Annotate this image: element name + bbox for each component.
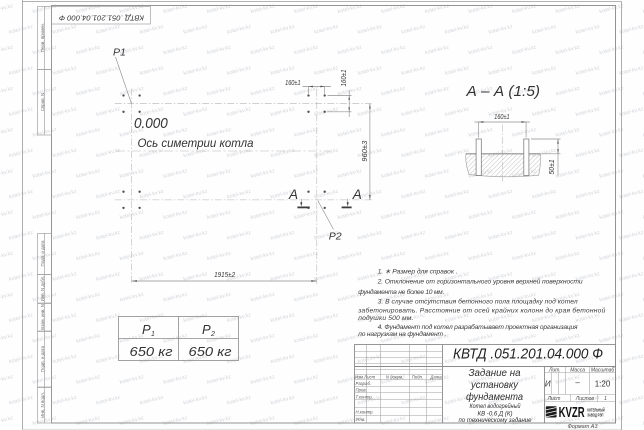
svg-text:Листов: Листов [575, 396, 595, 402]
svg-text:kotel-kv.kz: kotel-kv.kz [488, 230, 514, 242]
svg-text:kotel-kv.kz: kotel-kv.kz [8, 312, 34, 324]
svg-text:kotel-kv.kz: kotel-kv.kz [119, 292, 145, 304]
svg-text:kotel-kv.kz: kotel-kv.kz [599, 333, 625, 345]
svg-text:1: 1 [604, 396, 607, 402]
svg-text:kotel-kv.kz: kotel-kv.kz [32, 127, 58, 139]
svg-text:kotel-kv.kz: kotel-kv.kz [183, 106, 209, 118]
svg-text:kotel-kv.kz: kotel-kv.kz [424, 209, 450, 221]
svg-text:kotel-kv.kz: kotel-kv.kz [381, 415, 407, 427]
svg-text:kotel-kv.kz: kotel-kv.kz [226, 65, 252, 77]
svg-text:kotel-kv.kz: kotel-kv.kz [206, 168, 232, 180]
svg-text:kotel-kv.kz: kotel-kv.kz [619, 353, 644, 365]
svg-text:kotel-kv.kz: kotel-kv.kz [8, 353, 34, 365]
svg-text:kotel-kv.kz: kotel-kv.kz [52, 24, 78, 36]
svg-text:kotel-kv.kz: kotel-kv.kz [0, 333, 14, 345]
svg-text:kotel-kv.kz: kotel-kv.kz [532, 230, 558, 242]
svg-text:kotel-kv.kz: kotel-kv.kz [76, 209, 102, 221]
svg-text:Лит.: Лит. [548, 367, 561, 373]
svg-text:kotel-kv.kz: kotel-kv.kz [424, 44, 450, 56]
svg-text:kotel-kv.kz: kotel-kv.kz [401, 189, 427, 201]
svg-text:kotel-kv.kz: kotel-kv.kz [0, 250, 14, 262]
svg-text:kotel-kv.kz: kotel-kv.kz [32, 209, 58, 221]
svg-text:kotel-kv.kz: kotel-kv.kz [401, 147, 427, 159]
svg-text:kotel-kv.kz: kotel-kv.kz [76, 86, 102, 98]
svg-text:kotel-kv.kz: kotel-kv.kz [250, 415, 276, 427]
svg-text:Утв.: Утв. [356, 417, 366, 422]
svg-text:kotel-kv.kz: kotel-kv.kz [575, 189, 601, 201]
svg-text:kotel-kv.kz: kotel-kv.kz [555, 168, 581, 180]
svg-text:КОТЕЛЬНЫЙ: КОТЕЛЬНЫЙ [587, 407, 605, 412]
svg-text:kotel-kv.kz: kotel-kv.kz [32, 3, 58, 15]
svg-text:kotel-kv.kz: kotel-kv.kz [0, 127, 14, 139]
svg-text:А – А (1:5): А – А (1:5) [465, 83, 540, 100]
svg-text:kotel-kv.kz: kotel-kv.kz [381, 3, 407, 15]
svg-text:kotel-kv.kz: kotel-kv.kz [139, 65, 165, 77]
svg-text:kotel-kv.kz: kotel-kv.kz [337, 44, 363, 56]
svg-text:kotel-kv.kz: kotel-kv.kz [0, 168, 14, 180]
svg-text:kotel-kv.kz: kotel-kv.kz [270, 353, 296, 365]
svg-text:kotel-kv.kz: kotel-kv.kz [76, 127, 102, 139]
svg-text:kotel-kv.kz: kotel-kv.kz [96, 353, 122, 365]
svg-text:kotel-kv.kz: kotel-kv.kz [76, 292, 102, 304]
svg-text:Инв. N дубл.: Инв. N дубл. [40, 276, 45, 302]
svg-text:Лист: Лист [547, 396, 561, 402]
svg-text:kotel-kv.kz: kotel-kv.kz [337, 3, 363, 15]
svg-text:kotel-kv.kz: kotel-kv.kz [444, 24, 470, 36]
svg-text:kotel-kv.kz: kotel-kv.kz [619, 24, 644, 36]
svg-text:kotel-kv.kz: kotel-kv.kz [250, 44, 276, 56]
svg-text:kotel-kv.kz: kotel-kv.kz [381, 168, 407, 180]
svg-text:kotel-kv.kz: kotel-kv.kz [250, 333, 276, 345]
svg-text:kotel-kv.kz: kotel-kv.kz [424, 168, 450, 180]
svg-text:kotel-kv.kz: kotel-kv.kz [183, 230, 209, 242]
svg-text:kotel-kv.kz: kotel-kv.kz [163, 374, 189, 386]
svg-text:kotel-kv.kz: kotel-kv.kz [401, 106, 427, 118]
svg-text:kotel-kv.kz: kotel-kv.kz [250, 209, 276, 221]
svg-text:kotel-kv.kz: kotel-kv.kz [8, 147, 34, 159]
svg-text:kotel-kv.kz: kotel-kv.kz [599, 3, 625, 15]
svg-text:Справ. N: Справ. N [40, 93, 45, 111]
svg-text:kotel-kv.kz: kotel-kv.kz [96, 106, 122, 118]
svg-text:kotel-kv.kz: kotel-kv.kz [294, 209, 320, 221]
svg-text:ЗАВОД РЭП: ЗАВОД РЭП [587, 413, 603, 418]
svg-text:kotel-kv.kz: kotel-kv.kz [512, 209, 538, 221]
svg-text:kotel-kv.kz: kotel-kv.kz [314, 312, 340, 324]
svg-text:Разраб.: Разраб. [356, 381, 372, 386]
svg-text:фундамента не более 10 мм.: фундамента не более 10 мм. [358, 288, 444, 296]
svg-text:P1: P1 [113, 46, 126, 58]
svg-text:160±1: 160±1 [285, 78, 301, 87]
svg-text:kotel-kv.kz: kotel-kv.kz [52, 65, 78, 77]
svg-text:kotel-kv.kz: kotel-kv.kz [270, 230, 296, 242]
svg-text:kotel-kv.kz: kotel-kv.kz [52, 106, 78, 118]
svg-text:kotel-kv.kz: kotel-kv.kz [294, 415, 320, 427]
svg-text:kotel-kv.kz: kotel-kv.kz [599, 209, 625, 221]
svg-text:kotel-kv.kz: kotel-kv.kz [424, 3, 450, 15]
svg-text:kotel-kv.kz: kotel-kv.kz [314, 353, 340, 365]
svg-text:kotel-kv.kz: kotel-kv.kz [163, 168, 189, 180]
svg-text:650 кг: 650 кг [189, 344, 233, 359]
svg-text:50±1: 50±1 [547, 159, 556, 174]
svg-text:–: – [575, 378, 580, 387]
svg-text:kotel-kv.kz: kotel-kv.kz [8, 271, 34, 283]
svg-text:kotel-kv.kz: kotel-kv.kz [575, 65, 601, 77]
svg-text:kotel-kv.kz: kotel-kv.kz [512, 250, 538, 262]
svg-text:kotel-kv.kz: kotel-kv.kz [444, 65, 470, 77]
svg-text:kotel-kv.kz: kotel-kv.kz [119, 168, 145, 180]
svg-text:Н.контр.: Н.контр. [356, 410, 374, 415]
svg-text:kotel-kv.kz: kotel-kv.kz [119, 209, 145, 221]
svg-text:kotel-kv.kz: kotel-kv.kz [206, 209, 232, 221]
svg-text:kotel-kv.kz: kotel-kv.kz [163, 3, 189, 15]
svg-text:Изм.Лист: Изм.Лист [355, 375, 376, 380]
svg-text:kotel-kv.kz: kotel-kv.kz [139, 24, 165, 36]
svg-text:kotel-kv.kz: kotel-kv.kz [76, 44, 102, 56]
svg-text:kotel-kv.kz: kotel-kv.kz [270, 24, 296, 36]
svg-text:kotel-kv.kz: kotel-kv.kz [183, 65, 209, 77]
svg-text:kotel-kv.kz: kotel-kv.kz [52, 312, 78, 324]
svg-text:Взам. инв. N: Взам. инв. N [40, 304, 45, 330]
svg-text:kotel-kv.kz: kotel-kv.kz [0, 292, 14, 304]
svg-text:kotel-kv.kz: kotel-kv.kz [381, 209, 407, 221]
svg-text:kotel-kv.kz: kotel-kv.kz [163, 44, 189, 56]
svg-text:kotel-kv.kz: kotel-kv.kz [250, 292, 276, 304]
svg-text:установку: установку [470, 379, 519, 391]
svg-text:Перв. примен.: Перв. примен. [40, 23, 45, 52]
svg-text:kotel-kv.kz: kotel-kv.kz [8, 395, 34, 407]
svg-text:kotel-kv.kz: kotel-kv.kz [250, 250, 276, 262]
svg-text:kotel-kv.kz: kotel-kv.kz [206, 415, 232, 427]
svg-text:kotel-kv.kz: kotel-kv.kz [119, 374, 145, 386]
svg-text:kotel-kv.kz: kotel-kv.kz [163, 86, 189, 98]
svg-text:kotel-kv.kz: kotel-kv.kz [0, 86, 14, 98]
svg-text:kotel-kv.kz: kotel-kv.kz [226, 395, 252, 407]
svg-text:kotel-kv.kz: kotel-kv.kz [619, 65, 644, 77]
svg-text:по нагрузкам на фундамент .: по нагрузкам на фундамент . [358, 330, 446, 338]
svg-text:kotel-kv.kz: kotel-kv.kz [8, 189, 34, 201]
svg-text:2. Отклонение от горизонтально: 2. Отклонение от горизонтального уровня … [377, 278, 583, 286]
svg-text:kotel-kv.kz: kotel-kv.kz [183, 395, 209, 407]
svg-text:kotel-kv.kz: kotel-kv.kz [206, 250, 232, 262]
svg-text:kotel-kv.kz: kotel-kv.kz [226, 230, 252, 242]
svg-text:2: 2 [210, 331, 215, 338]
svg-text:kotel-kv.kz: kotel-kv.kz [575, 230, 601, 242]
svg-text:kotel-kv.kz: kotel-kv.kz [424, 86, 450, 98]
svg-text:kotel-kv.kz: kotel-kv.kz [139, 395, 165, 407]
svg-text:kotel-kv.kz: kotel-kv.kz [424, 250, 450, 262]
svg-text:kotel-kv.kz: kotel-kv.kz [8, 24, 34, 36]
svg-text:Масса: Масса [570, 367, 585, 373]
svg-text:kotel-kv.kz: kotel-kv.kz [96, 65, 122, 77]
svg-text:kotel-kv.kz: kotel-kv.kz [8, 65, 34, 77]
svg-text:kotel-kv.kz: kotel-kv.kz [163, 209, 189, 221]
svg-text:kotel-kv.kz: kotel-kv.kz [532, 106, 558, 118]
svg-text:kotel-kv.kz: kotel-kv.kz [270, 106, 296, 118]
svg-text:kotel-kv.kz: kotel-kv.kz [52, 353, 78, 365]
svg-text:3. В случае отсутствия бетонно: 3. В случае отсутствия бетонного пола пл… [378, 297, 578, 305]
svg-text:kotel-kv.kz: kotel-kv.kz [96, 312, 122, 324]
svg-text:подушки 500 мм.: подушки 500 мм. [358, 314, 413, 322]
svg-text:kotel-kv.kz: kotel-kv.kz [96, 147, 122, 159]
svg-text:kotel-kv.kz: kotel-kv.kz [599, 292, 625, 304]
svg-text:kotel-kv.kz: kotel-kv.kz [250, 86, 276, 98]
svg-text:kotel-kv.kz: kotel-kv.kz [294, 292, 320, 304]
svg-text:kotel-kv.kz: kotel-kv.kz [0, 3, 14, 15]
svg-text:kotel-kv.kz: kotel-kv.kz [468, 250, 494, 262]
svg-text:kotel-kv.kz: kotel-kv.kz [424, 127, 450, 139]
svg-text:650 кг: 650 кг [130, 344, 174, 359]
svg-text:kotel-kv.kz: kotel-kv.kz [401, 65, 427, 77]
svg-text:kotel-kv.kz: kotel-kv.kz [226, 24, 252, 36]
svg-text:kotel-kv.kz: kotel-kv.kz [32, 333, 58, 345]
svg-text:kotel-kv.kz: kotel-kv.kz [139, 230, 165, 242]
svg-text:kotel-kv.kz: kotel-kv.kz [270, 147, 296, 159]
svg-text:kotel-kv.kz: kotel-kv.kz [314, 147, 340, 159]
svg-text:kotel-kv.kz: kotel-kv.kz [52, 395, 78, 407]
svg-text:kotel-kv.kz: kotel-kv.kz [357, 230, 383, 242]
svg-text:kotel-kv.kz: kotel-kv.kz [96, 189, 122, 201]
svg-text:kotel-kv.kz: kotel-kv.kz [0, 44, 14, 56]
svg-text:kotel-kv.kz: kotel-kv.kz [294, 250, 320, 262]
svg-text:kotel-kv.kz: kotel-kv.kz [381, 44, 407, 56]
svg-text:kotel-kv.kz: kotel-kv.kz [599, 250, 625, 262]
svg-text:kotel-kv.kz: kotel-kv.kz [401, 395, 427, 407]
svg-text:по техническому задание: по техническому задание [459, 418, 533, 424]
svg-text:kotel-kv.kz: kotel-kv.kz [270, 65, 296, 77]
svg-text:P: P [142, 322, 151, 337]
svg-text:kotel-kv.kz: kotel-kv.kz [163, 292, 189, 304]
svg-text:kotel-kv.kz: kotel-kv.kz [0, 374, 14, 386]
svg-text:kotel-kv.kz: kotel-kv.kz [206, 292, 232, 304]
svg-text:kotel-kv.kz: kotel-kv.kz [619, 147, 644, 159]
svg-text:КВ -0,6 Д (К): КВ -0,6 Д (К) [478, 412, 513, 418]
svg-text:Пров.: Пров. [356, 387, 367, 392]
svg-text:kotel-kv.kz: kotel-kv.kz [76, 250, 102, 262]
svg-text:Ось симетрии котла: Ось симетрии котла [138, 136, 254, 150]
svg-text:kotel-kv.kz: kotel-kv.kz [270, 312, 296, 324]
svg-text:kotel-kv.kz: kotel-kv.kz [381, 250, 407, 262]
svg-text:Подп. и дата: Подп. и дата [40, 240, 45, 266]
svg-text:kotel-kv.kz: kotel-kv.kz [337, 168, 363, 180]
svg-text:kotel-kv.kz: kotel-kv.kz [250, 3, 276, 15]
svg-text:1:20: 1:20 [595, 380, 611, 389]
svg-text:kotel-kv.kz: kotel-kv.kz [401, 230, 427, 242]
svg-text:P2: P2 [329, 230, 342, 242]
svg-text:kotel-kv.kz: kotel-kv.kz [444, 230, 470, 242]
svg-text:kotel-kv.kz: kotel-kv.kz [8, 230, 34, 242]
svg-text:1: 1 [151, 331, 155, 338]
svg-text:kotel-kv.kz: kotel-kv.kz [488, 65, 514, 77]
svg-text:kotel-kv.kz: kotel-kv.kz [0, 415, 14, 427]
svg-text:КВТД .051.201.04.000 Ф: КВТД .051.201.04.000 Ф [59, 13, 144, 20]
svg-text:kotel-kv.kz: kotel-kv.kz [555, 44, 581, 56]
svg-text:kotel-kv.kz: kotel-kv.kz [357, 24, 383, 36]
svg-text:kotel-kv.kz: kotel-kv.kz [294, 44, 320, 56]
svg-text:КВТД .051.201.04.000 Ф: КВТД .051.201.04.000 Ф [453, 346, 603, 362]
svg-text:kotel-kv.kz: kotel-kv.kz [96, 230, 122, 242]
svg-text:kotel-kv.kz: kotel-kv.kz [619, 312, 644, 324]
svg-text:А: А [288, 187, 298, 202]
svg-text:kotel-kv.kz: kotel-kv.kz [294, 374, 320, 386]
svg-text:kotel-kv.kz: kotel-kv.kz [381, 127, 407, 139]
svg-text:kotel-kv.kz: kotel-kv.kz [512, 127, 538, 139]
svg-text:1915±2: 1915±2 [214, 270, 235, 279]
svg-text:kotel-kv.kz: kotel-kv.kz [468, 3, 494, 15]
svg-text:kotel-kv.kz: kotel-kv.kz [337, 127, 363, 139]
svg-text:kotel-kv.kz: kotel-kv.kz [575, 147, 601, 159]
svg-text:kotel-kv.kz: kotel-kv.kz [294, 127, 320, 139]
svg-text:P: P [202, 322, 211, 337]
svg-text:kotel-kv.kz: kotel-kv.kz [163, 415, 189, 427]
svg-text:kotel-kv.kz: kotel-kv.kz [337, 250, 363, 262]
svg-text:kotel-kv.kz: kotel-kv.kz [250, 168, 276, 180]
svg-text:kotel-kv.kz: kotel-kv.kz [314, 189, 340, 201]
svg-text:160±1: 160±1 [339, 70, 348, 87]
svg-text:Масштаб: Масштаб [591, 367, 615, 373]
svg-text:kotel-kv.kz: kotel-kv.kz [76, 333, 102, 345]
svg-text:kotel-kv.kz: kotel-kv.kz [512, 44, 538, 56]
svg-text:kotel-kv.kz: kotel-kv.kz [555, 127, 581, 139]
svg-text:kotel-kv.kz: kotel-kv.kz [96, 395, 122, 407]
svg-text:kotel-kv.kz: kotel-kv.kz [532, 65, 558, 77]
svg-text:kotel-kv.kz: kotel-kv.kz [76, 415, 102, 427]
svg-text:kotel-kv.kz: kotel-kv.kz [314, 65, 340, 77]
svg-text:kotel-kv.kz: kotel-kv.kz [468, 333, 494, 345]
svg-text:kotel-kv.kz: kotel-kv.kz [599, 127, 625, 139]
svg-text:kotel-kv.kz: kotel-kv.kz [76, 168, 102, 180]
svg-text:kotel-kv.kz: kotel-kv.kz [32, 168, 58, 180]
svg-text:kotel-kv.kz: kotel-kv.kz [52, 271, 78, 283]
svg-text:kotel-kv.kz: kotel-kv.kz [337, 209, 363, 221]
svg-text:kotel-kv.kz: kotel-kv.kz [294, 3, 320, 15]
svg-text:kotel-kv.kz: kotel-kv.kz [96, 271, 122, 283]
svg-text:kotel-kv.kz: kotel-kv.kz [226, 312, 252, 324]
svg-text:kotel-kv.kz: kotel-kv.kz [226, 189, 252, 201]
svg-text:kotel-kv.kz: kotel-kv.kz [183, 189, 209, 201]
svg-text:N докум.: N докум. [386, 375, 403, 380]
svg-text:kotel-kv.kz: kotel-kv.kz [357, 65, 383, 77]
svg-text:kotel-kv.kz: kotel-kv.kz [488, 189, 514, 201]
svg-text:kotel-kv.kz: kotel-kv.kz [555, 3, 581, 15]
svg-text:kotel-kv.kz: kotel-kv.kz [206, 374, 232, 386]
svg-text:kotel-kv.kz: kotel-kv.kz [270, 395, 296, 407]
svg-text:kotel-kv.kz: kotel-kv.kz [163, 250, 189, 262]
svg-text:kotel-kv.kz: kotel-kv.kz [619, 189, 644, 201]
svg-text:kotel-kv.kz: kotel-kv.kz [119, 415, 145, 427]
svg-text:Т.контр.: Т.контр. [356, 394, 373, 399]
svg-text:kotel-kv.kz: kotel-kv.kz [294, 168, 320, 180]
svg-text:kotel-kv.kz: kotel-kv.kz [599, 86, 625, 98]
svg-text:kotel-kv.kz: kotel-kv.kz [575, 24, 601, 36]
svg-text:kotel-kv.kz: kotel-kv.kz [444, 106, 470, 118]
svg-text:kotel-kv.kz: kotel-kv.kz [512, 3, 538, 15]
svg-text:kotel-kv.kz: kotel-kv.kz [294, 333, 320, 345]
svg-text:kotel-kv.kz: kotel-kv.kz [206, 44, 232, 56]
svg-text:kotel-kv.kz: kotel-kv.kz [488, 24, 514, 36]
svg-text:kotel-kv.kz: kotel-kv.kz [96, 24, 122, 36]
svg-text:kotel-kv.kz: kotel-kv.kz [206, 3, 232, 15]
svg-text:Подп.: Подп. [412, 375, 423, 380]
svg-text:А: А [352, 187, 362, 202]
svg-text:kotel-kv.kz: kotel-kv.kz [555, 86, 581, 98]
svg-text:kotel-kv.kz: kotel-kv.kz [468, 127, 494, 139]
svg-text:kotel-kv.kz: kotel-kv.kz [532, 189, 558, 201]
svg-text:Подп. и дата: Подп. и дата [40, 346, 45, 372]
svg-text:kotel-kv.kz: kotel-kv.kz [206, 86, 232, 98]
svg-text:KVZR: KVZR [559, 405, 585, 421]
svg-text:kotel-kv.kz: kotel-kv.kz [381, 86, 407, 98]
svg-text:0.000: 0.000 [134, 115, 168, 132]
svg-text:kotel-kv.kz: kotel-kv.kz [76, 374, 102, 386]
svg-text:kotel-kv.kz: kotel-kv.kz [444, 189, 470, 201]
svg-text:kotel-kv.kz: kotel-kv.kz [401, 24, 427, 36]
svg-text:kotel-kv.kz: kotel-kv.kz [619, 271, 644, 283]
svg-text:960±3: 960±3 [360, 141, 369, 162]
svg-text:160±1: 160±1 [494, 112, 509, 121]
svg-text:kotel-kv.kz: kotel-kv.kz [599, 168, 625, 180]
svg-text:Формат А3: Формат А3 [567, 424, 598, 430]
svg-text:kotel-kv.kz: kotel-kv.kz [555, 333, 581, 345]
svg-text:kotel-kv.kz: kotel-kv.kz [555, 250, 581, 262]
svg-text:kotel-kv.kz: kotel-kv.kz [0, 209, 14, 221]
svg-text:kotel-kv.kz: kotel-kv.kz [512, 333, 538, 345]
svg-text:kotel-kv.kz: kotel-kv.kz [250, 374, 276, 386]
svg-text:Котел водогрейный: Котел водогрейный [470, 403, 522, 410]
svg-text:kotel-kv.kz: kotel-kv.kz [119, 250, 145, 262]
svg-text:kotel-kv.kz: kotel-kv.kz [599, 44, 625, 56]
svg-text:kotel-kv.kz: kotel-kv.kz [32, 374, 58, 386]
svg-text:Инв. N подл.: Инв. N подл. [40, 392, 45, 418]
svg-text:kotel-kv.kz: kotel-kv.kz [183, 24, 209, 36]
svg-text:kotel-kv.kz: kotel-kv.kz [619, 395, 644, 407]
svg-text:kotel-kv.kz: kotel-kv.kz [468, 209, 494, 221]
svg-text:kotel-kv.kz: kotel-kv.kz [532, 24, 558, 36]
svg-text:kotel-kv.kz: kotel-kv.kz [52, 189, 78, 201]
svg-text:kotel-kv.kz: kotel-kv.kz [314, 24, 340, 36]
svg-text:1. ∗ Размер для справок .: 1. ∗ Размер для справок . [378, 267, 458, 275]
svg-text:kotel-kv.kz: kotel-kv.kz [226, 106, 252, 118]
svg-text:kotel-kv.kz: kotel-kv.kz [575, 106, 601, 118]
svg-text:kotel-kv.kz: kotel-kv.kz [424, 415, 450, 427]
svg-text:kotel-kv.kz: kotel-kv.kz [619, 106, 644, 118]
svg-text:Дата: Дата [429, 375, 442, 380]
svg-text:забетонировать. Расстояние от: забетонировать. Расстояние от осей крайн… [357, 306, 605, 314]
svg-text:kotel-kv.kz: kotel-kv.kz [250, 127, 276, 139]
svg-text:kotel-kv.kz: kotel-kv.kz [8, 106, 34, 118]
svg-text:kotel-kv.kz: kotel-kv.kz [468, 44, 494, 56]
svg-text:kotel-kv.kz: kotel-kv.kz [139, 189, 165, 201]
svg-text:kotel-kv.kz: kotel-kv.kz [52, 147, 78, 159]
svg-text:kotel-kv.kz: kotel-kv.kz [314, 271, 340, 283]
svg-text:Задание на: Задание на [469, 367, 521, 379]
svg-text:kotel-kv.kz: kotel-kv.kz [294, 86, 320, 98]
svg-text:kotel-kv.kz: kotel-kv.kz [619, 230, 644, 242]
svg-text:4. Фундамент под котел разраба: 4. Фундамент под котел разрабатывает про… [378, 323, 578, 331]
svg-text:фундамента: фундамента [466, 391, 523, 403]
svg-text:kotel-kv.kz: kotel-kv.kz [314, 395, 340, 407]
svg-text:kotel-kv.kz: kotel-kv.kz [52, 230, 78, 242]
svg-text:kotel-kv.kz: kotel-kv.kz [555, 209, 581, 221]
svg-text:И: И [545, 380, 551, 389]
